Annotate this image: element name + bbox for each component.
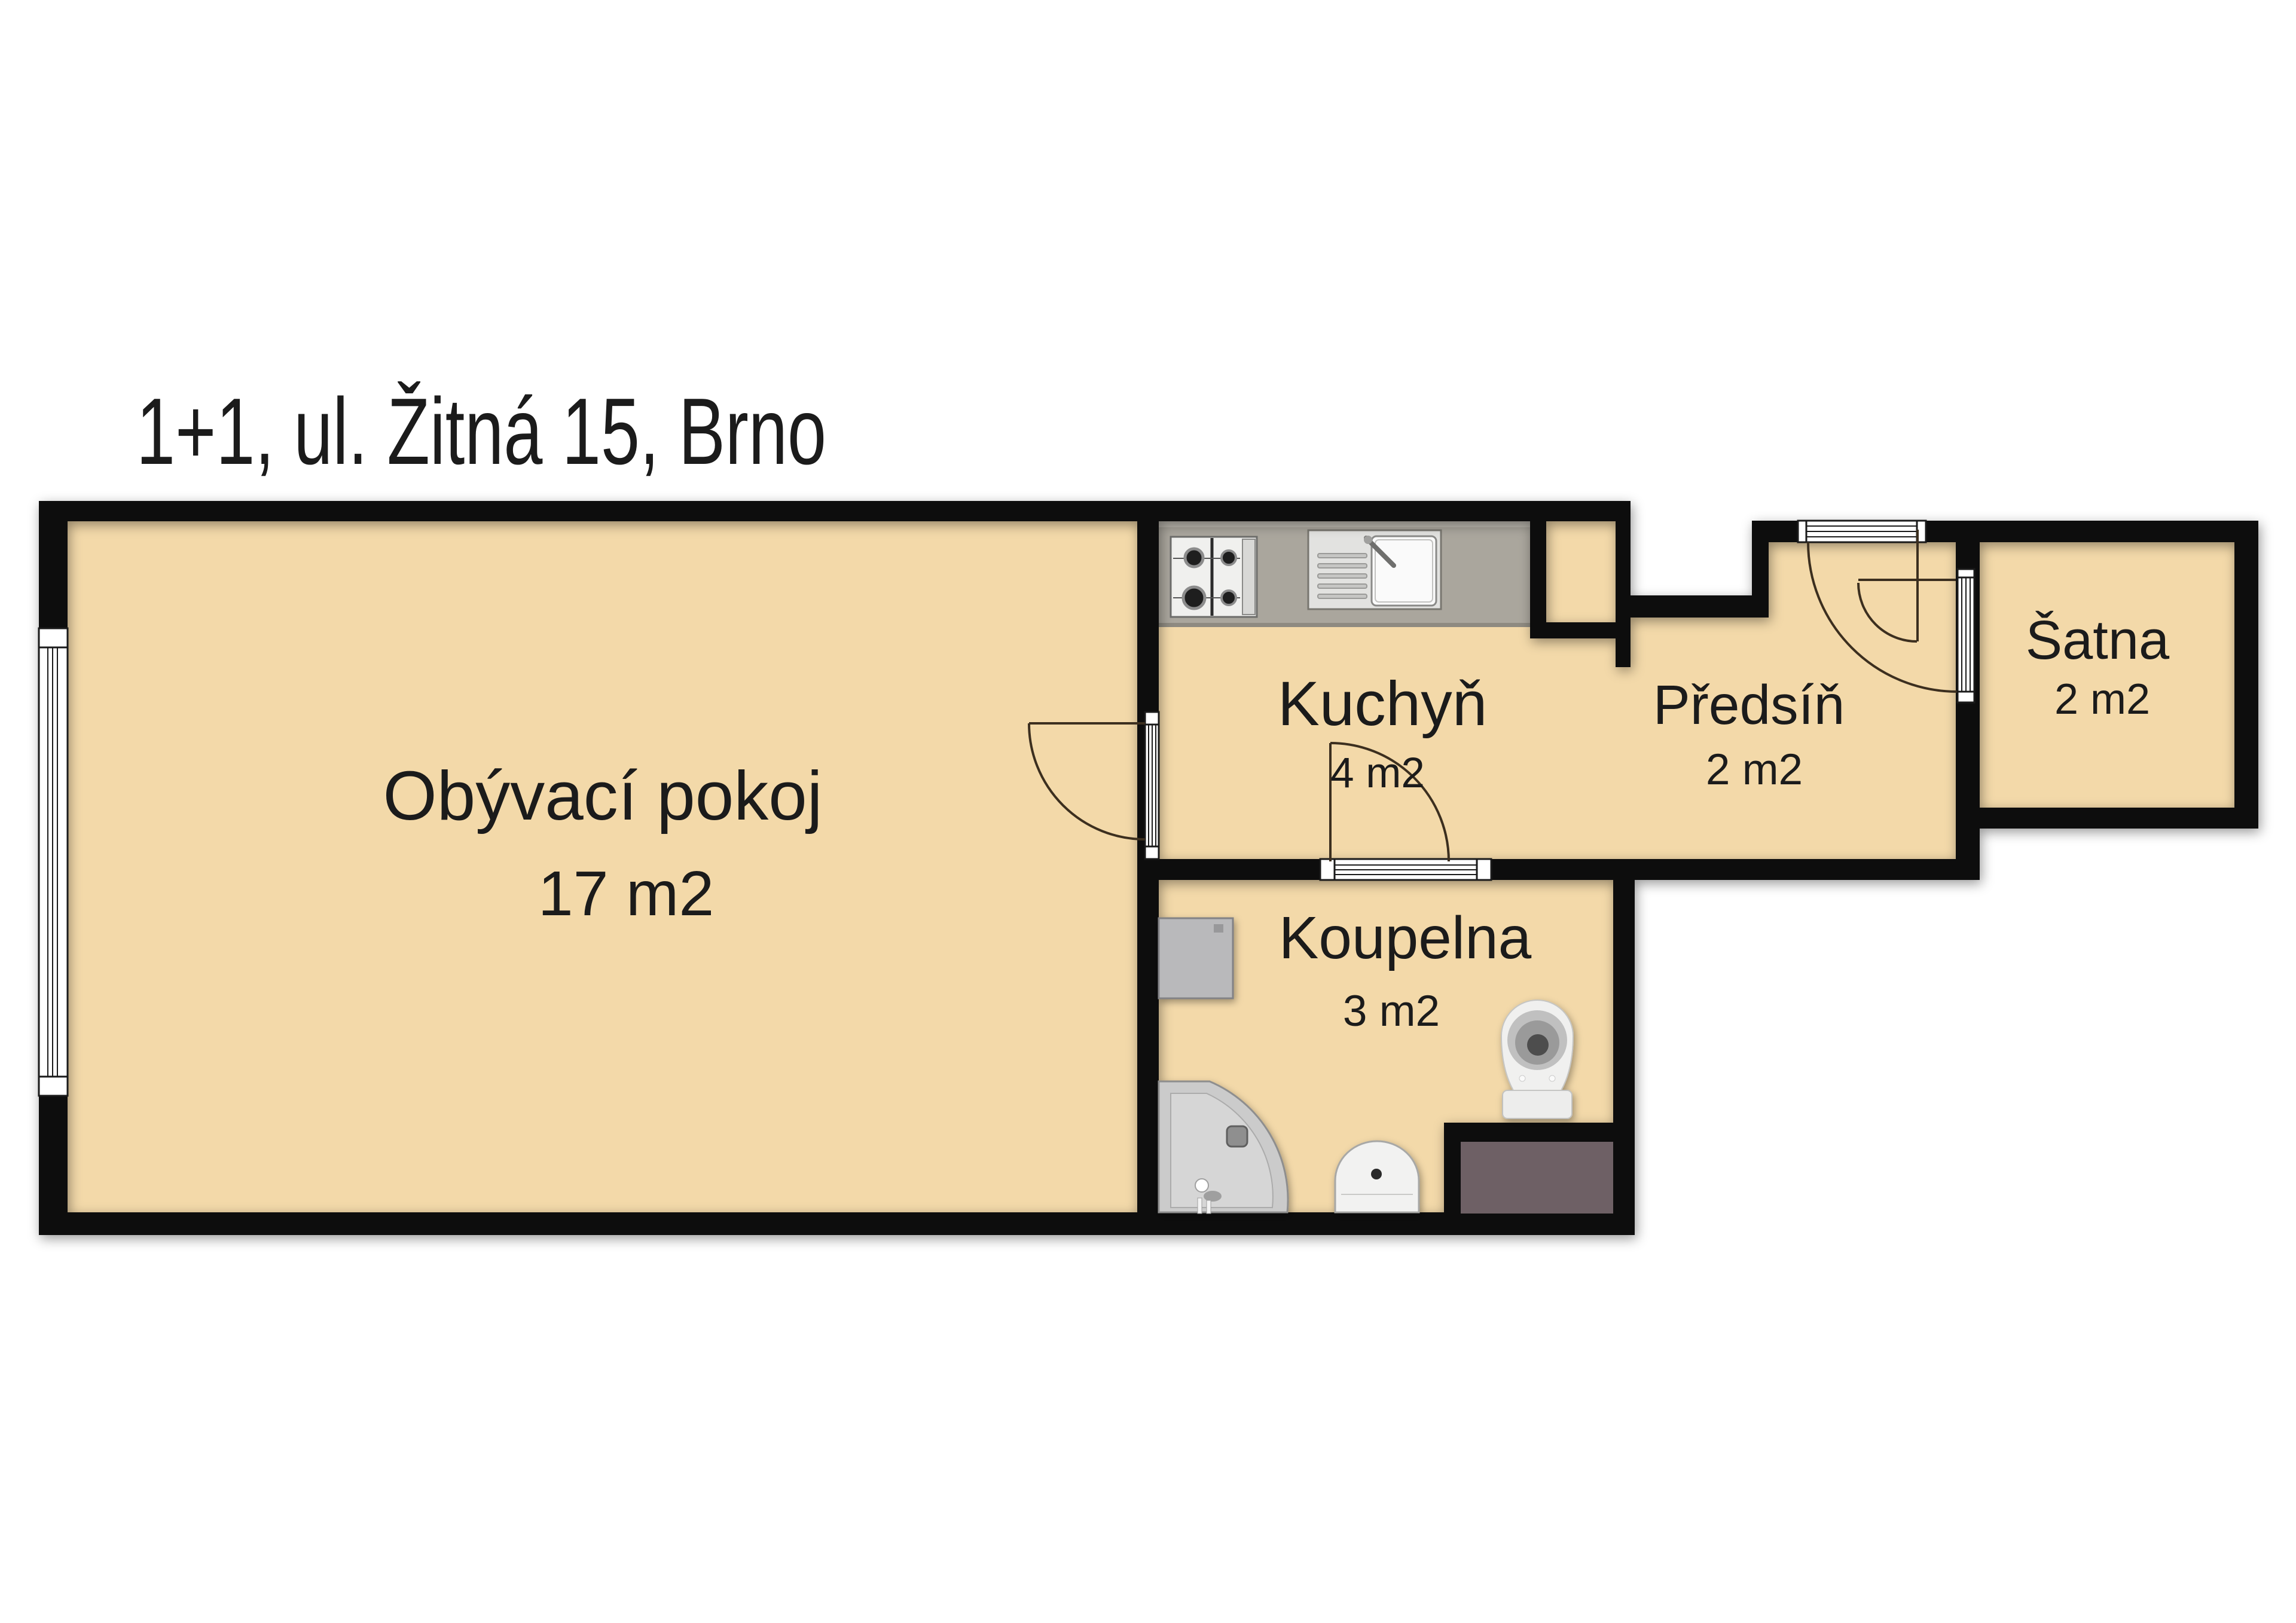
svg-text:1+1, ul. Žitná 15, Brno: 1+1, ul. Žitná 15, Brno [136, 379, 826, 484]
svg-text:2 m2: 2 m2 [2054, 676, 2150, 723]
svg-text:Předsíň: Předsíň [1653, 674, 1845, 736]
svg-text:Obývací pokoj: Obývací pokoj [383, 757, 822, 835]
svg-text:4 m2: 4 m2 [1330, 750, 1425, 797]
svg-text:3 m2: 3 m2 [1343, 987, 1440, 1035]
svg-text:Šatna: Šatna [2026, 610, 2170, 671]
svg-text:17 m2: 17 m2 [538, 858, 715, 929]
svg-text:Koupelna: Koupelna [1279, 904, 1532, 971]
svg-text:2 m2: 2 m2 [1706, 745, 1803, 794]
svg-text:Kuchyň: Kuchyň [1278, 669, 1487, 739]
